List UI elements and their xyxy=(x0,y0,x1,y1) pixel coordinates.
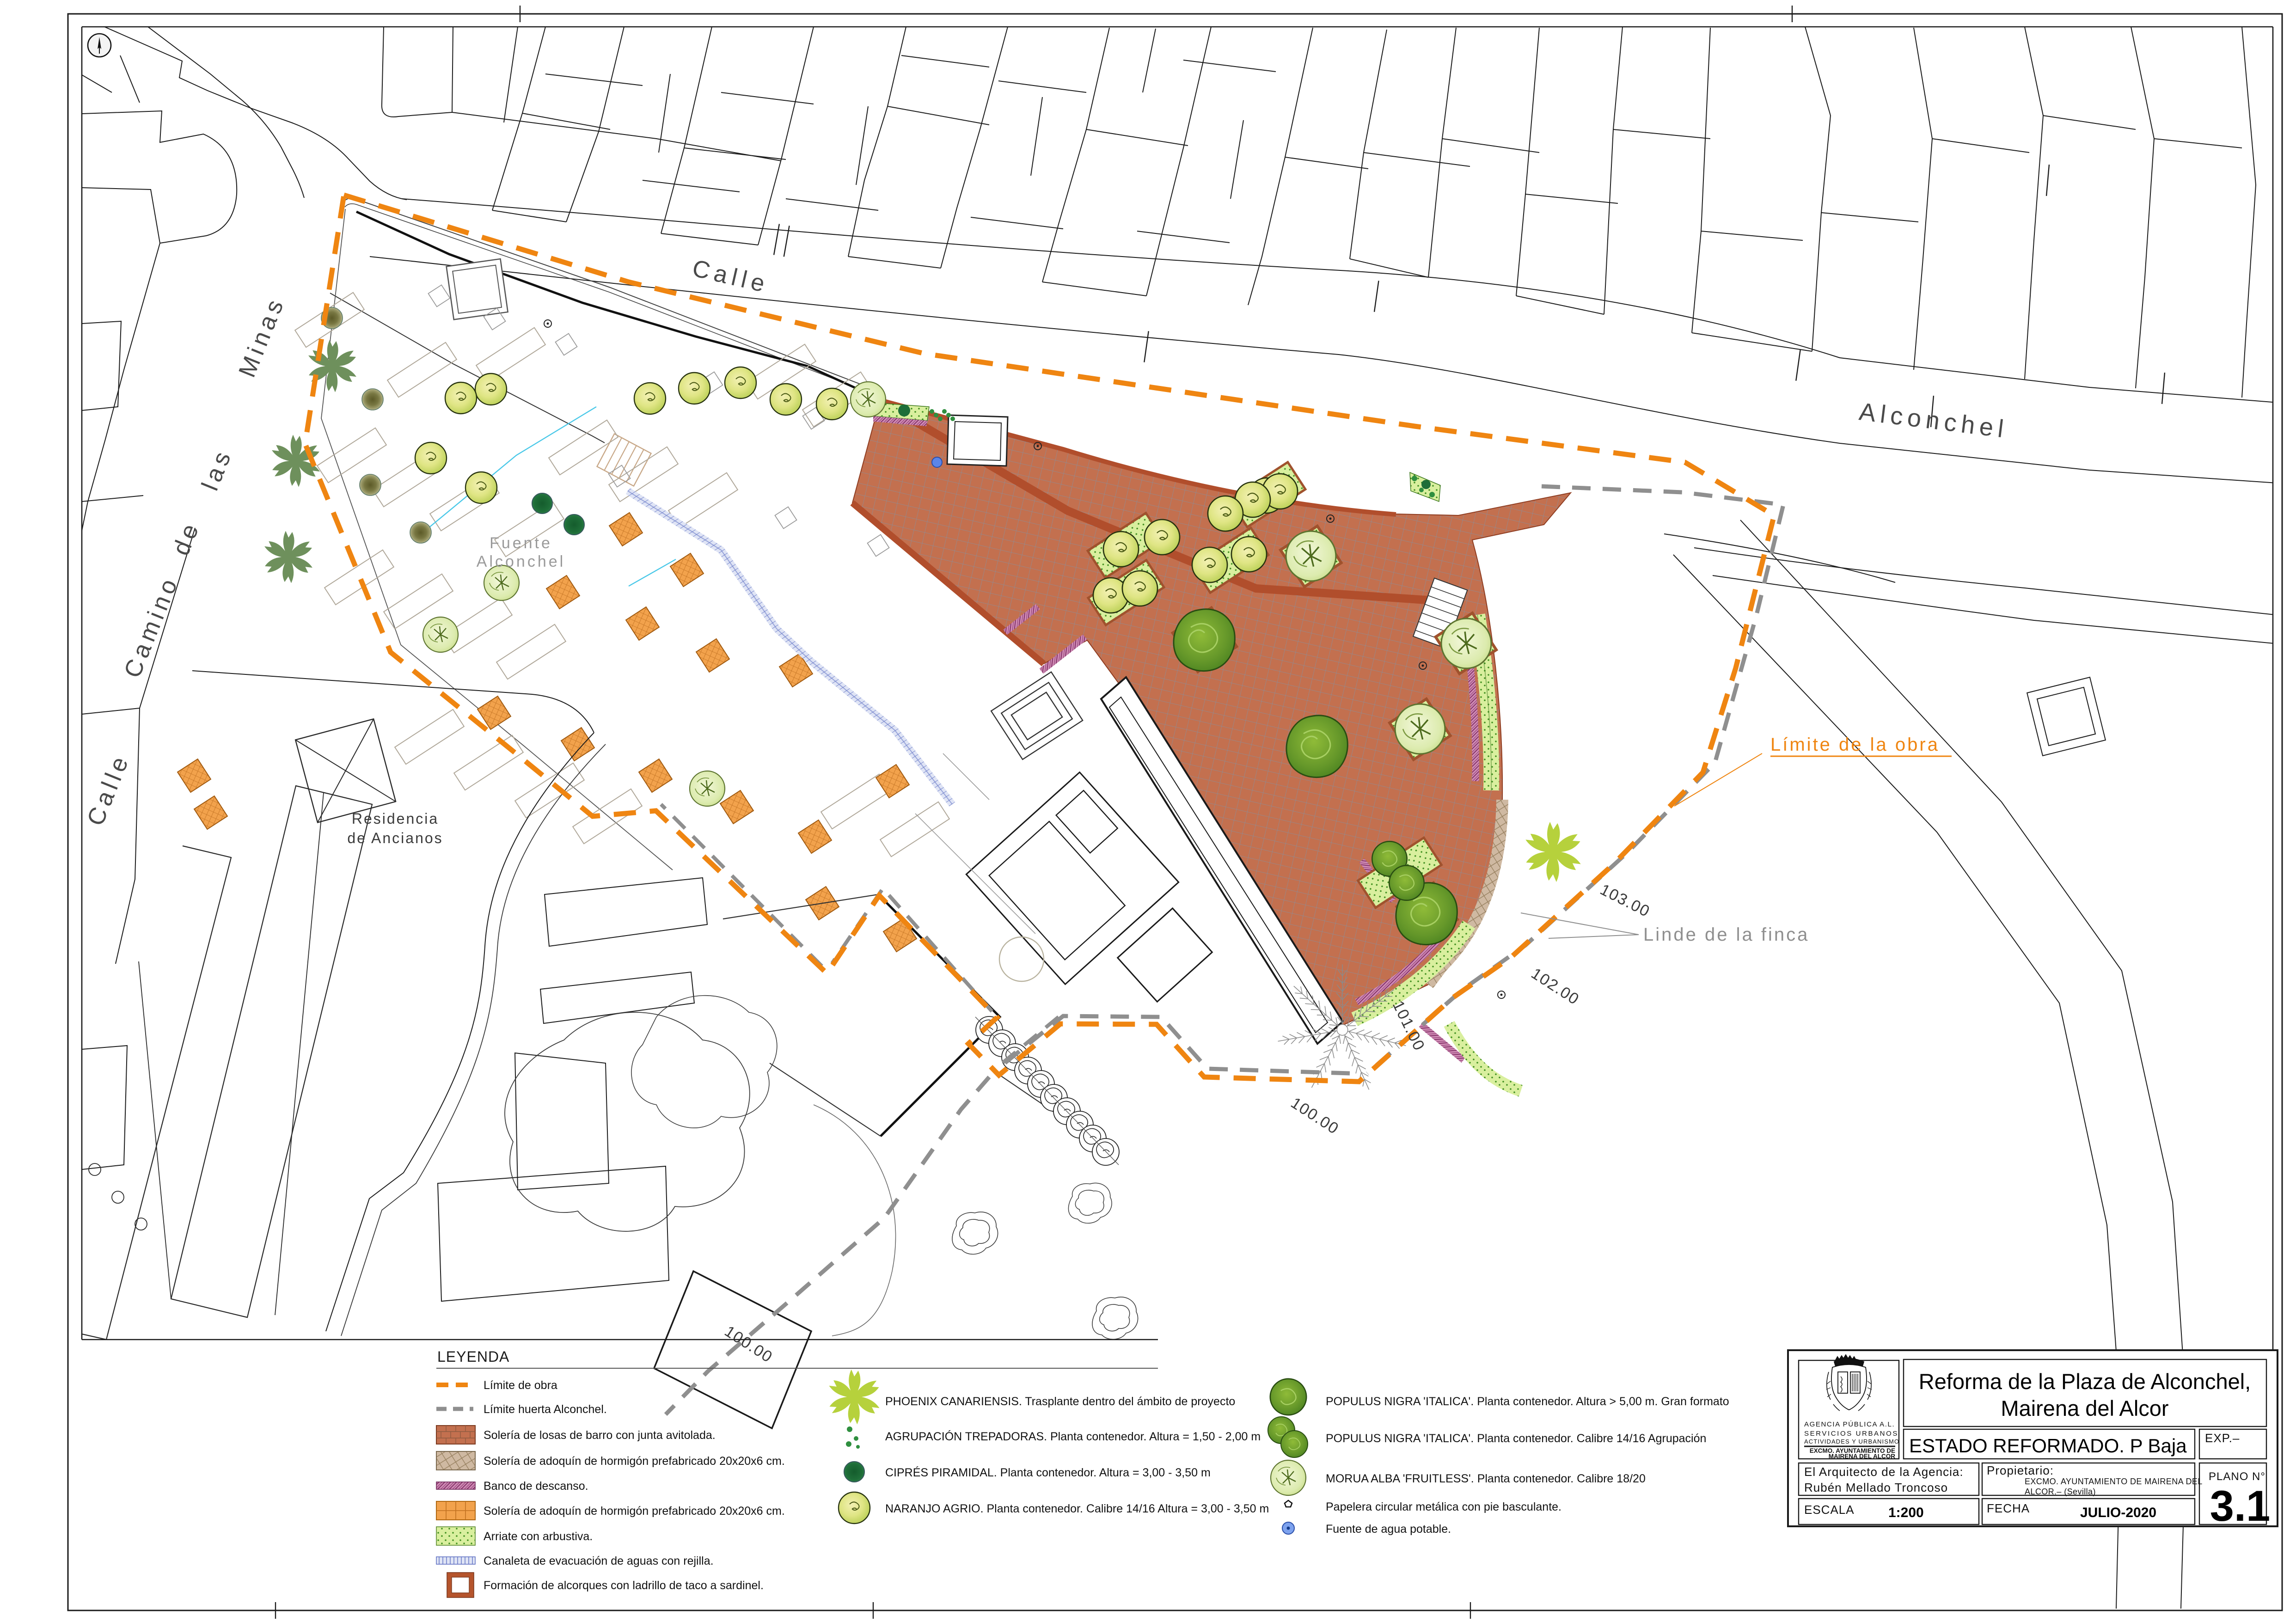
svg-text:NARANJO AGRIO. Planta contene: NARANJO AGRIO. Planta contenedor. Calibr… xyxy=(885,1502,1269,1515)
svg-text:ESTADO REFORMADO. P Baja: ESTADO REFORMADO. P Baja xyxy=(1909,1435,2187,1457)
svg-text:AGRUPACIÓN TREPADORAS. Planta: AGRUPACIÓN TREPADORAS. Planta contenedor… xyxy=(885,1430,1261,1443)
svg-text:Arriate con arbustiva.: Arriate con arbustiva. xyxy=(484,1530,593,1543)
svg-text:Propietario:: Propietario: xyxy=(1987,1463,2054,1477)
svg-text:Rubén Mellado Troncoso: Rubén Mellado Troncoso xyxy=(1804,1481,1948,1494)
svg-text:Alconchel: Alconchel xyxy=(477,553,565,570)
svg-text:JULIO-2020: JULIO-2020 xyxy=(2080,1505,2156,1520)
svg-text:Linde de la finca: Linde de la finca xyxy=(1643,924,1809,945)
svg-text:POPULUS NIGRA 'ITALICA'. Plant: POPULUS NIGRA 'ITALICA'. Planta contened… xyxy=(1326,1432,1706,1445)
svg-text:de Ancianos: de Ancianos xyxy=(347,830,443,846)
svg-text:Residencia: Residencia xyxy=(352,810,439,827)
svg-text:PHOENIX CANARIENSIS. Trasplant: PHOENIX CANARIENSIS. Trasplante dentro d… xyxy=(885,1395,1235,1408)
svg-text:Fuente de agua potable.: Fuente de agua potable. xyxy=(1326,1523,1451,1536)
svg-text:ACTIVIDADES Y URBANISMO: ACTIVIDADES Y URBANISMO xyxy=(1804,1438,1899,1445)
svg-text:Límite huerta Alconchel.: Límite huerta Alconchel. xyxy=(484,1403,607,1416)
svg-text:CIPRÉS PIRAMIDAL. Planta cont: CIPRÉS PIRAMIDAL. Planta contenedor. Alt… xyxy=(885,1466,1211,1479)
svg-text:Banco de descanso.: Banco de descanso. xyxy=(484,1480,588,1493)
svg-text:MORUA ALBA 'FRUITLESS'. Planta: MORUA ALBA 'FRUITLESS'. Planta contenedo… xyxy=(1326,1472,1646,1485)
svg-text:Límite de la obra: Límite de la obra xyxy=(1770,734,1940,755)
svg-text:Mairena del Alcor: Mairena del Alcor xyxy=(2001,1396,2168,1420)
svg-text:Reforma de la Plaza de Alconch: Reforma de la Plaza de Alconchel, xyxy=(1919,1369,2251,1394)
svg-text:Solería de adoquín de hormigón: Solería de adoquín de hormigón prefabric… xyxy=(484,1455,785,1468)
svg-text:Fuente: Fuente xyxy=(490,534,552,552)
svg-text:Límite de obra: Límite de obra xyxy=(484,1379,557,1392)
svg-text:POPULUS NIGRA 'ITALICA'. Plant: POPULUS NIGRA 'ITALICA'. Planta contened… xyxy=(1326,1395,1729,1408)
svg-text:ALCOR.– (Sevilla): ALCOR.– (Sevilla) xyxy=(2025,1487,2096,1496)
svg-text:ESCALA: ESCALA xyxy=(1804,1503,1855,1517)
svg-text:LEYENDA: LEYENDA xyxy=(437,1348,509,1365)
svg-text:Solería de adoquín de hormigón: Solería de adoquín de hormigón prefabric… xyxy=(484,1505,785,1518)
svg-text:1:200: 1:200 xyxy=(1888,1505,1924,1520)
svg-text:EXP.–: EXP.– xyxy=(2205,1431,2240,1445)
svg-text:Papelera circular metálica con: Papelera circular metálica con pie bascu… xyxy=(1326,1500,1561,1513)
svg-text:El Arquitecto de la Agenci: El Arquitecto de la Agencia: xyxy=(1804,1465,1964,1479)
svg-text:Solería de losas de barro con: Solería de losas de barro con junta avit… xyxy=(484,1429,716,1442)
svg-text:3.1: 3.1 xyxy=(2210,1481,2271,1530)
svg-text:FECHA: FECHA xyxy=(1987,1501,2030,1515)
svg-text:AGENCIA PÚBLICA A.L.: AGENCIA PÚBLICA A.L. xyxy=(1804,1420,1895,1428)
svg-text:EXCMO. AYUNTAMIENTO DE MAIRENA: EXCMO. AYUNTAMIENTO DE MAIRENA DEL xyxy=(2025,1477,2203,1486)
svg-text:Formación de alcorques con lad: Formación de alcorques con ladrillo de t… xyxy=(484,1579,764,1592)
svg-text:MAIRENA DEL ALCOR: MAIRENA DEL ALCOR xyxy=(1829,1453,1895,1460)
svg-text:PLANO N°: PLANO N° xyxy=(2209,1470,2265,1483)
svg-text:Canaleta de evacuación de agua: Canaleta de evacuación de aguas con reji… xyxy=(484,1555,714,1567)
svg-text:SERVICIOS URBANOS: SERVICIOS URBANOS xyxy=(1804,1430,1898,1438)
